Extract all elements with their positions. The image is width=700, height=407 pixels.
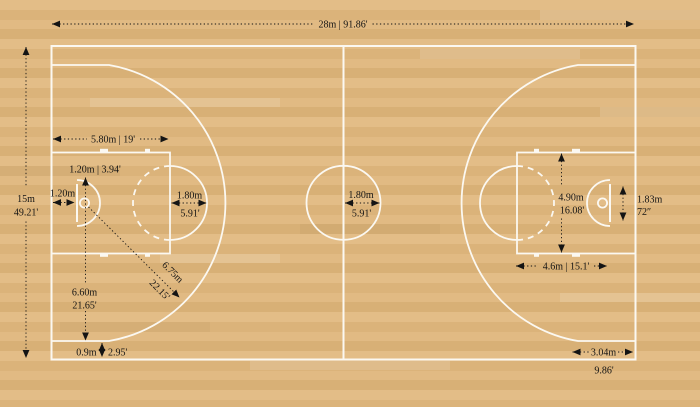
lane-tick bbox=[145, 149, 150, 153]
dim-label: 28m | 91.86' bbox=[318, 20, 367, 31]
dim-label: 1.80m bbox=[177, 191, 203, 202]
lane-tick bbox=[100, 253, 108, 257]
court-diagram-svg: 28m | 91.86' 15m 49.21' 5.80m | 19' 1.20… bbox=[0, 0, 700, 407]
dim-label: 3.04m bbox=[591, 348, 617, 359]
dim-label: 4.90m bbox=[558, 193, 584, 204]
wood-floor bbox=[0, 0, 700, 407]
dim-label: 1.20m | 3.94' bbox=[69, 165, 121, 176]
dim-label: 2.95' bbox=[108, 348, 128, 359]
dim-label: 49.21' bbox=[14, 208, 39, 219]
basketball-court-diagram: 28m | 91.86' 15m 49.21' 5.80m | 19' 1.20… bbox=[0, 0, 700, 407]
dim-label: 16.08' bbox=[560, 206, 585, 217]
plank-patch bbox=[560, 293, 700, 302]
lane-tick bbox=[534, 149, 539, 153]
lane-tick bbox=[100, 149, 108, 153]
dim-label: 0.9m bbox=[76, 348, 97, 359]
plank-patch bbox=[250, 361, 450, 370]
lane-tick bbox=[572, 149, 580, 153]
dim-label: 9.86' bbox=[594, 366, 614, 377]
dim-label: 1.83m bbox=[637, 195, 663, 206]
dim-label: 4.6m | 15.1' bbox=[543, 262, 590, 273]
plank-patch bbox=[60, 322, 210, 332]
plank-patch bbox=[540, 10, 700, 20]
dim-label: 15m bbox=[17, 194, 35, 205]
lane-tick bbox=[145, 253, 150, 257]
plank-patch bbox=[600, 107, 700, 117]
dim-label: 1.80m bbox=[348, 190, 374, 201]
dim-label: 21.65' bbox=[72, 301, 97, 312]
lane-tick bbox=[534, 253, 539, 257]
dim-label: 72″ bbox=[637, 207, 651, 218]
dim-label: 5.91' bbox=[180, 209, 200, 220]
floor-base bbox=[0, 0, 700, 407]
dim-label: 5.80m | 19' bbox=[91, 135, 135, 146]
plank-patch bbox=[160, 254, 280, 263]
plank-patch bbox=[420, 49, 580, 59]
lane-tick bbox=[572, 253, 580, 257]
dim-label: 1.20m bbox=[50, 189, 76, 200]
dim-label: 5.91' bbox=[352, 209, 372, 220]
dim-label: 6.60m bbox=[72, 288, 98, 299]
